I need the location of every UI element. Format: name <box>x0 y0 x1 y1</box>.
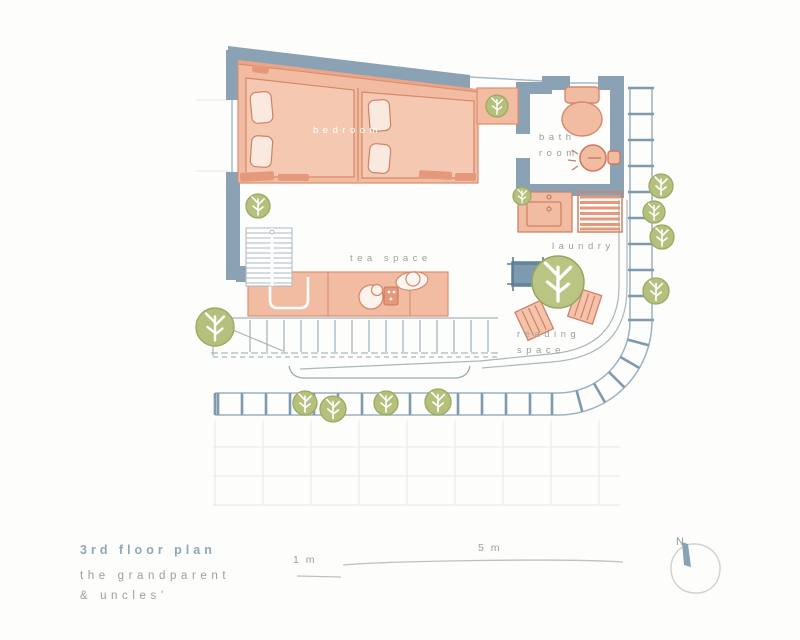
stove-dot <box>390 298 393 301</box>
scale-small-line <box>297 576 341 577</box>
tree <box>486 95 508 117</box>
scale-small-label: 1 m <box>293 554 317 566</box>
stove-dot <box>393 291 396 294</box>
trellis-rungs-arc <box>577 340 649 412</box>
pillow <box>250 135 273 167</box>
scale-large-line <box>343 560 623 565</box>
laundry-label: laundry <box>552 241 615 252</box>
sitting-figure-head <box>406 272 420 286</box>
plan-title: 3rd floor plan <box>80 543 216 557</box>
drying-rack <box>578 192 622 232</box>
title-block: 3rd floor plan the grandparent & uncles' <box>80 543 230 602</box>
bathroom-label-line2: room <box>539 148 579 159</box>
pillow <box>368 143 391 174</box>
tree <box>643 278 669 304</box>
tree <box>425 389 451 415</box>
stairs <box>246 228 292 286</box>
tree <box>650 225 674 249</box>
tree <box>649 174 673 198</box>
floor-plan-sheet: bedroom bath room laundry <box>0 0 800 640</box>
reading-space-label-line1: reading <box>517 329 580 340</box>
deck-railing <box>211 318 500 357</box>
scale-large-label: 5 m <box>478 542 502 554</box>
tea-space-label: tea space <box>350 253 432 264</box>
tree <box>532 256 584 308</box>
toilet-tank <box>565 87 599 103</box>
kettle-lid <box>372 285 383 296</box>
reading-space-label-line2: space <box>517 345 565 356</box>
scale-bar: 1 m 5 m <box>293 542 623 577</box>
stove-dot <box>388 291 391 294</box>
bathroom-area: bath room <box>539 87 620 171</box>
wall-left-lower <box>226 172 240 280</box>
laundry-area: laundry <box>518 192 622 252</box>
roof-line <box>470 77 543 81</box>
pillow <box>250 91 274 124</box>
tree <box>196 308 234 346</box>
wall-bath-right <box>610 84 624 198</box>
tree <box>643 201 665 223</box>
bathroom-label-line1: bath <box>539 132 576 143</box>
plan-subtitle-line1: the grandparent <box>80 570 230 582</box>
tree <box>320 396 346 422</box>
tree <box>293 391 317 415</box>
plan-subtitle-line2: & uncles' <box>80 590 168 602</box>
tree <box>374 391 398 415</box>
north-arrow: N <box>671 536 720 593</box>
bedroom-label: bedroom <box>313 125 382 136</box>
bath-sink-handle <box>608 151 620 164</box>
stove <box>384 287 398 305</box>
toilet-bowl <box>562 102 602 136</box>
compass-needle <box>682 542 691 567</box>
tree <box>513 187 531 205</box>
compass-circle <box>671 544 720 593</box>
floor-plan-drawing: bedroom bath room laundry <box>0 0 800 640</box>
tree <box>246 194 270 218</box>
